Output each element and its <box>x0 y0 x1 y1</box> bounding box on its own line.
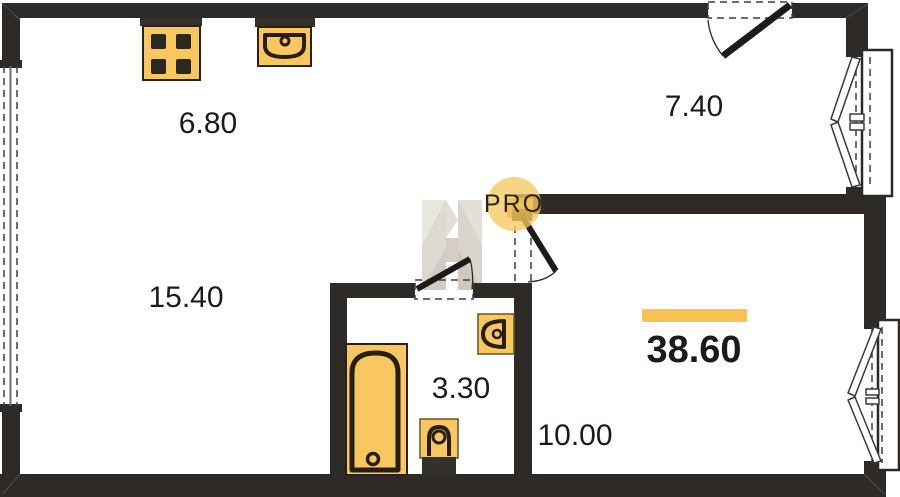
wall-segment <box>2 3 20 67</box>
entrance-door <box>708 2 792 56</box>
total-area: 38.60 <box>642 309 747 371</box>
wall-segment <box>514 283 532 474</box>
window-right-top <box>831 50 892 196</box>
room-label-room: 10.00 <box>537 419 612 452</box>
casement-sash <box>831 57 860 122</box>
wall-segment <box>0 474 886 497</box>
pro-badge-text: PRO <box>484 190 544 218</box>
room-label-kitchen: 6.80 <box>179 107 237 140</box>
pro-watermark: PRO <box>484 177 544 231</box>
window-handle <box>850 114 864 121</box>
kitchen-sink-icon <box>255 18 315 66</box>
window-left <box>4 66 17 406</box>
total-area-label: 38.60 <box>646 329 741 371</box>
stove-icon <box>140 18 202 80</box>
floor-plan: 6.80 7.40 15.40 3.30 10.00 38.60 PRO <box>0 0 900 497</box>
room-label-hall: 7.40 <box>665 90 723 123</box>
toilet-icon <box>420 419 458 475</box>
total-area-highlight <box>642 309 747 322</box>
window-handle <box>866 398 879 404</box>
window-right-bottom <box>848 320 899 470</box>
casement-sash <box>848 397 881 463</box>
wall-segment <box>330 283 415 298</box>
casement-sash <box>848 327 881 396</box>
wall-segment <box>864 214 886 329</box>
wall-segment <box>2 3 708 18</box>
window-handle <box>850 123 864 130</box>
floor-plan-canvas: 6.80 7.40 15.40 3.30 10.00 38.60 PRO <box>0 0 900 497</box>
wall-segment <box>515 194 886 214</box>
washbasin-icon <box>478 314 514 354</box>
room-label-living: 15.40 <box>148 281 223 314</box>
bathtub-icon <box>346 344 407 475</box>
window-handle <box>866 389 879 395</box>
wall-segment <box>330 283 347 474</box>
wall-segment <box>2 410 20 476</box>
room-label-bathroom: 3.30 <box>432 372 490 405</box>
